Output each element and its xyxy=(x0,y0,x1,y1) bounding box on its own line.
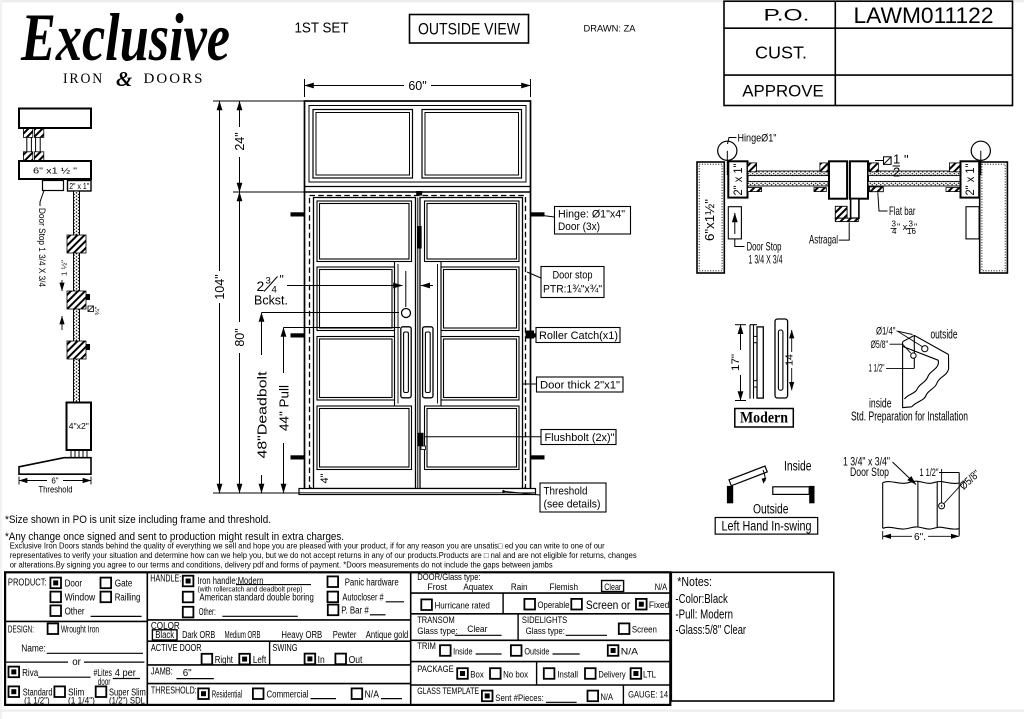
svg-text:Window: Window xyxy=(65,593,96,604)
svg-text:Roller Catch(x1): Roller Catch(x1) xyxy=(539,330,618,342)
svg-text:THRESHOLD:: THRESHOLD: xyxy=(151,686,197,697)
svg-text:Aquatex: Aquatex xyxy=(463,582,493,593)
svg-text:Ø1/4": Ø1/4" xyxy=(876,326,896,338)
svg-text:Flemish: Flemish xyxy=(549,582,578,593)
svg-text:Door Stop: Door Stop xyxy=(850,465,889,479)
svg-text:104": 104" xyxy=(213,274,227,299)
svg-text:TRIM: TRIM xyxy=(417,641,436,652)
svg-text:4"x2": 4"x2" xyxy=(69,421,89,431)
svg-text:(1 1/2"): (1 1/2") xyxy=(24,695,49,705)
svg-text:Outside: Outside xyxy=(753,502,789,517)
svg-text:In: In xyxy=(318,655,325,666)
svg-text:Door thick 2"x1": Door thick 2"x1" xyxy=(540,379,620,391)
svg-text:": " xyxy=(904,152,909,167)
svg-text:Install: Install xyxy=(557,669,578,680)
svg-text:Door Stop: Door Stop xyxy=(747,242,782,254)
svg-text:Exclusive: Exclusive xyxy=(20,0,230,75)
svg-text:PRODUCT:: PRODUCT: xyxy=(8,578,47,589)
svg-text:": " xyxy=(280,273,284,287)
svg-text:17": 17" xyxy=(730,354,742,371)
svg-text:Frost: Frost xyxy=(428,582,448,593)
svg-text:Glass type:: Glass type: xyxy=(417,626,458,637)
svg-text:1 3/4 X 3/4: 1 3/4 X 3/4 xyxy=(749,255,783,267)
svg-text:LTL: LTL xyxy=(643,669,657,680)
svg-text:Right: Right xyxy=(215,655,234,666)
svg-text:Door Stop 1 3/4 X 3/4: Door Stop 1 3/4 X 3/4 xyxy=(37,208,47,287)
svg-text:(1/2") SDL: (1/2") SDL xyxy=(109,695,145,705)
svg-text:Clear: Clear xyxy=(467,624,488,635)
svg-text:Left Hand In-swing: Left Hand In-swing xyxy=(722,519,812,534)
svg-text:IRON: IRON xyxy=(63,71,104,87)
svg-text:80": 80" xyxy=(233,328,247,346)
svg-text:N/A: N/A xyxy=(621,646,639,657)
svg-text:No box: No box xyxy=(503,669,528,680)
svg-text:Box: Box xyxy=(470,669,484,680)
svg-text:Out: Out xyxy=(349,655,363,666)
svg-text:Medium ORB: Medium ORB xyxy=(225,630,261,641)
svg-text:2" x 1": 2" x 1" xyxy=(731,164,745,196)
svg-text:Outside: Outside xyxy=(524,646,549,657)
svg-text:Glass type:: Glass type: xyxy=(526,626,565,637)
svg-text:Operable: Operable xyxy=(538,600,570,611)
svg-text:N/A: N/A xyxy=(655,582,668,593)
svg-text:Screen or: Screen or xyxy=(586,600,631,612)
svg-text:Dark ORB: Dark ORB xyxy=(182,630,215,641)
svg-text:*Notes:: *Notes: xyxy=(677,575,712,589)
svg-text:CUST.: CUST. xyxy=(755,43,807,63)
svg-text:Modern: Modern xyxy=(740,410,788,427)
svg-text:Astragal: Astragal xyxy=(809,233,838,247)
svg-text:inside: inside xyxy=(869,397,892,411)
svg-text:Antique gold: Antique gold xyxy=(366,630,409,641)
svg-text:2" x 1": 2" x 1" xyxy=(963,164,977,196)
svg-text:Inside: Inside xyxy=(453,646,472,657)
svg-text:HingeØ1": HingeØ1" xyxy=(738,133,777,145)
svg-text:or alterations.By signing you: or alterations.By signing you agree to o… xyxy=(10,561,553,570)
svg-text:TRANSOM: TRANSOM xyxy=(417,615,455,626)
svg-text:GAUGE: 14: GAUGE: 14 xyxy=(628,690,669,701)
svg-text:Threshold: Threshold xyxy=(39,485,73,495)
svg-text:1 1/2": 1 1/2" xyxy=(920,467,939,479)
svg-text:Commercial: Commercial xyxy=(267,689,309,700)
svg-text:6" x1 ½ ": 6" x1 ½ " xyxy=(33,166,77,176)
svg-text:-Color:Black: -Color:Black xyxy=(675,592,728,606)
svg-text:DOORS: DOORS xyxy=(144,71,205,87)
svg-text:(1 1/4"): (1 1/4") xyxy=(68,695,95,705)
svg-text:48"Deadbolt: 48"Deadbolt xyxy=(255,371,269,459)
svg-text:60": 60" xyxy=(408,79,426,93)
svg-text:Clear: Clear xyxy=(604,582,622,593)
svg-text:Bckst.: Bckst. xyxy=(254,293,288,308)
svg-text:N/A: N/A xyxy=(601,692,614,703)
svg-text:Exclusive Iron Doors stands be: Exclusive Iron Doors stands behind the q… xyxy=(10,542,605,551)
svg-text:24": 24" xyxy=(233,132,247,150)
svg-text:Rain: Rain xyxy=(511,582,528,593)
svg-text:JAMB:: JAMB: xyxy=(151,666,173,677)
svg-text:Heavy ORB: Heavy ORB xyxy=(281,630,322,641)
svg-text:Fixed: Fixed xyxy=(649,600,669,611)
svg-text:Door (3x): Door (3x) xyxy=(558,221,600,233)
svg-text:Name:: Name: xyxy=(21,644,46,655)
svg-text:Door: Door xyxy=(65,579,83,590)
svg-text:2" x 1": 2" x 1" xyxy=(69,181,89,191)
svg-text:Screen: Screen xyxy=(632,625,657,636)
svg-text:HANDLE:: HANDLE: xyxy=(150,574,181,585)
svg-text:Hurricane rated: Hurricane rated xyxy=(435,601,490,612)
svg-text:Other: Other xyxy=(65,606,86,617)
svg-text:Gate: Gate xyxy=(115,579,133,590)
svg-text:ACTIVE DOOR: ACTIVE DOOR xyxy=(151,643,202,654)
svg-text:Hinge: Ø1"x4": Hinge: Ø1"x4" xyxy=(558,209,625,221)
svg-text:Door stop: Door stop xyxy=(553,270,593,282)
svg-text:P.O.: P.O. xyxy=(764,6,810,25)
svg-text:or: or xyxy=(72,657,81,668)
svg-text:Riva: Riva xyxy=(22,668,39,679)
svg-text:Flushbolt (2x)": Flushbolt (2x)" xyxy=(545,432,615,444)
svg-text:2: 2 xyxy=(893,165,900,180)
svg-text:": " xyxy=(914,222,917,232)
svg-text:Flat bar: Flat bar xyxy=(889,204,916,218)
svg-text:-Glass:5/8" Clear: -Glass:5/8" Clear xyxy=(675,623,746,637)
svg-text:¾": ¾" xyxy=(95,306,102,316)
svg-text:6": 6" xyxy=(183,668,192,679)
svg-text:PACKAGE: PACKAGE xyxy=(417,664,454,675)
svg-text:4 per: 4 per xyxy=(115,668,137,679)
svg-text:Pewter: Pewter xyxy=(333,630,357,641)
svg-text:LAWM011122: LAWM011122 xyxy=(854,3,994,28)
svg-text:American standard double borin: American standard double boring xyxy=(199,592,313,603)
svg-text:44" Pull: 44" Pull xyxy=(277,385,291,431)
svg-text:1 ½": 1 ½" xyxy=(60,260,69,276)
svg-text:DRAWN: ZA: DRAWN: ZA xyxy=(584,24,637,35)
svg-text:14: 14 xyxy=(784,354,796,366)
svg-text:Residential: Residential xyxy=(212,689,242,700)
svg-text:Panic hardware: Panic hardware xyxy=(345,578,399,589)
svg-text:Wrought Iron: Wrought Iron xyxy=(61,625,99,636)
svg-text:Sent #Pieces:: Sent #Pieces: xyxy=(495,693,544,704)
svg-text:Other:: Other: xyxy=(199,607,216,618)
svg-text:Std. Preparation for Installat: Std. Preparation for Installation xyxy=(851,410,968,424)
svg-text:(see details): (see details) xyxy=(544,499,601,511)
svg-text:Left: Left xyxy=(253,655,267,666)
svg-text:SWING: SWING xyxy=(272,643,297,654)
svg-text:PTR:1¾"x¾": PTR:1¾"x¾" xyxy=(543,284,602,296)
svg-text:representatives to verify your: representatives to verify your situation… xyxy=(10,551,637,560)
svg-text:Autocloser #: Autocloser # xyxy=(342,593,384,604)
svg-text:GLASS TEMPLATE: GLASS TEMPLATE xyxy=(417,686,479,697)
svg-text:4": 4" xyxy=(319,473,331,483)
svg-text:outside: outside xyxy=(931,328,958,342)
svg-text:*Size shown in PO is unit size: *Size shown in PO is unit size including… xyxy=(5,514,271,526)
svg-text:SIDELIGHTS: SIDELIGHTS xyxy=(522,615,567,626)
svg-text:DESIGN:: DESIGN: xyxy=(8,625,34,636)
svg-text:Threshold: Threshold xyxy=(544,486,588,498)
svg-text:OUTSIDE VIEW: OUTSIDE VIEW xyxy=(418,20,520,39)
svg-text:6".: 6". xyxy=(914,532,926,543)
svg-text:1 1/2": 1 1/2" xyxy=(869,363,885,375)
svg-text:&: & xyxy=(116,67,133,91)
svg-text:APPROVE: APPROVE xyxy=(742,83,824,101)
svg-text:-Pull: Modern: -Pull: Modern xyxy=(675,608,733,622)
svg-text:N/A: N/A xyxy=(365,689,380,700)
svg-text:Black: Black xyxy=(155,630,174,641)
svg-text:P. Bar #: P. Bar # xyxy=(341,606,369,617)
svg-text:1ST SET: 1ST SET xyxy=(295,20,349,37)
svg-text:Delivery: Delivery xyxy=(598,669,625,680)
svg-text:6"x1½": 6"x1½" xyxy=(703,199,717,241)
svg-text:Railling: Railling xyxy=(115,593,141,604)
svg-text:Inside: Inside xyxy=(784,459,812,474)
svg-text:Ø5/8": Ø5/8" xyxy=(871,339,889,351)
